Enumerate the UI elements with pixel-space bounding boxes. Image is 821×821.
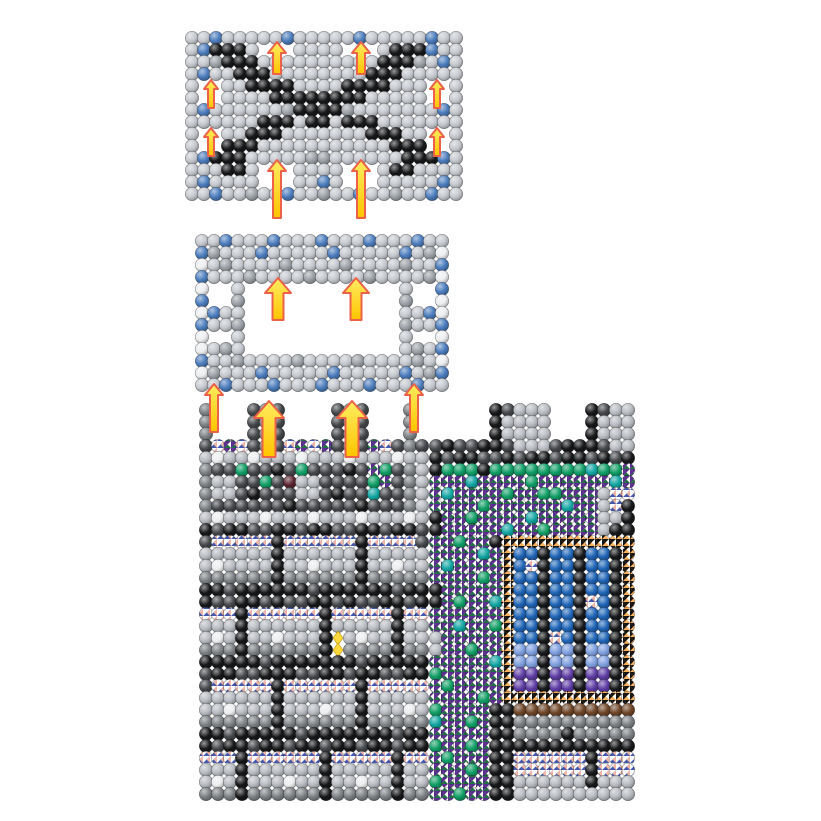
frame-panel bbox=[195, 234, 448, 391]
up-arrow bbox=[265, 278, 291, 320]
sparkle-diamond bbox=[333, 643, 343, 657]
molecular-assembly-figure bbox=[0, 0, 821, 821]
cross-section-panel bbox=[429, 403, 634, 800]
lid-lattice-panel bbox=[185, 31, 462, 200]
assembly-scene-canvas bbox=[0, 0, 821, 821]
box-wall-3d bbox=[199, 403, 428, 800]
up-arrow bbox=[343, 278, 369, 320]
